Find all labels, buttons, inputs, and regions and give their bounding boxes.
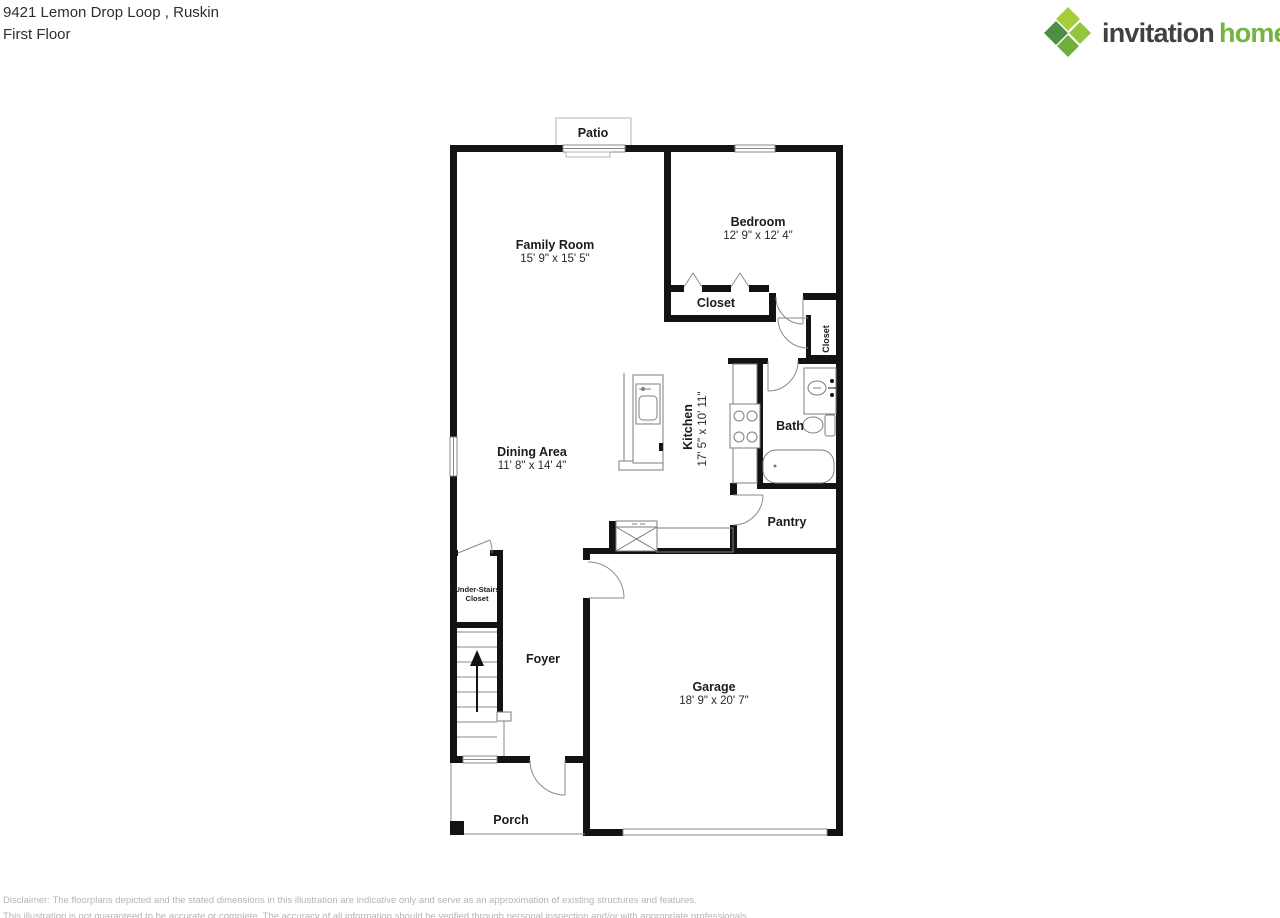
windows — [450, 145, 827, 835]
bedroom-closet-label: Closet — [697, 296, 736, 310]
kitchen-dimensions: 17' 5" x 10' 11" — [697, 391, 709, 466]
disclaimer-line1: Disclaimer: The floorplans depicted and … — [3, 893, 750, 909]
laundry-appliance-icon — [616, 521, 733, 552]
foyer-label: Foyer — [526, 652, 560, 666]
garage-label: Garage — [692, 680, 735, 694]
garage-entry-door — [588, 562, 624, 598]
porch-pillar — [450, 821, 464, 835]
kitchen-fixtures — [616, 364, 760, 552]
closet-bifold-doors — [684, 273, 749, 287]
stove-icon — [730, 404, 760, 448]
bath-vanity-sink-icon — [804, 368, 836, 414]
under-stairs-closet-door — [458, 540, 492, 553]
floorplan-page: 9421 Lemon Drop Loop , Ruskin First Floo… — [0, 0, 1280, 918]
porch-label: Porch — [493, 813, 528, 827]
under-stairs-closet-label-line1: Under-Stairs — [454, 585, 499, 594]
dining-area-dimensions: 11' 8" x 14' 4" — [498, 460, 567, 472]
disclaimer-line2: This illustration is not guaranteed to b… — [3, 909, 750, 918]
family-room-dimensions: 15' 9" x 15' 5" — [520, 253, 589, 265]
family-room-label: Family Room — [516, 238, 595, 252]
dining-area-label: Dining Area — [497, 445, 568, 459]
bedroom-label: Bedroom — [731, 215, 786, 229]
disclaimer: Disclaimer: The floorplans depicted and … — [3, 893, 750, 918]
kitchen-island-sink-icon — [619, 373, 663, 470]
pantry-label: Pantry — [768, 515, 807, 529]
garage-door — [623, 829, 827, 835]
pantry-door — [733, 495, 763, 525]
stairs-up-arrow-icon — [470, 650, 484, 712]
under-stairs-closet-label-line2: Closet — [466, 594, 489, 603]
patio-label: Patio — [578, 126, 609, 140]
floor-plan: Patio Family Room 15' 9" x 15' 5" Bedroo… — [0, 0, 1280, 918]
bath-label: Bath — [776, 419, 804, 433]
bedroom-door — [776, 297, 803, 324]
garage-dimensions: 18' 9" x 20' 7" — [679, 695, 748, 707]
kitchen-label: Kitchen — [681, 404, 695, 450]
exterior-walls — [450, 145, 843, 836]
bedroom-dimensions: 12' 9" x 12' 4" — [723, 230, 792, 242]
toilet-icon — [803, 415, 835, 436]
bathtub-icon — [763, 450, 834, 483]
hall-closet-label: Closet — [821, 325, 831, 353]
interior-walls — [450, 145, 836, 836]
front-door — [530, 760, 565, 795]
bath-door — [768, 361, 798, 391]
